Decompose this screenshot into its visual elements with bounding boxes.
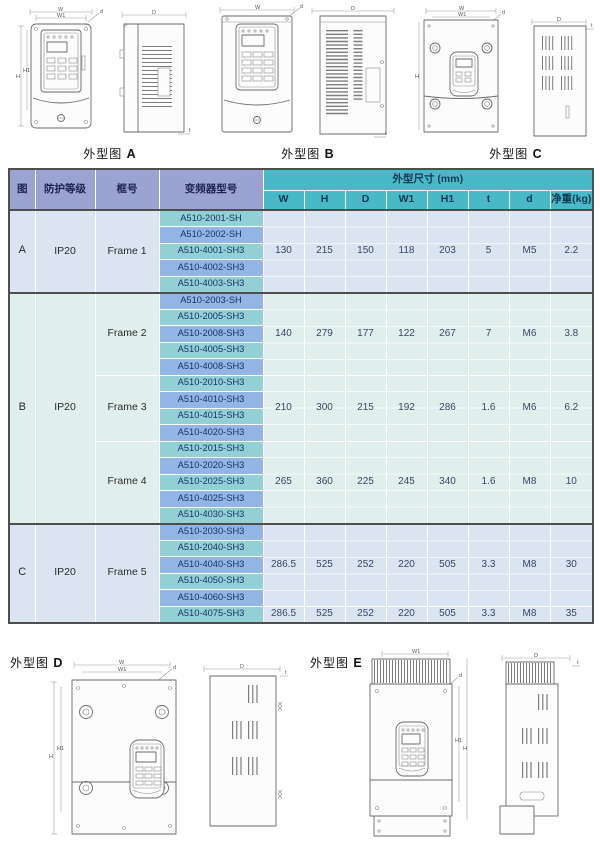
spec-cell-H1: 505 bbox=[427, 606, 468, 623]
header-model: 变频器型号 bbox=[159, 169, 263, 210]
model-cell: A510-4020-SH3 bbox=[159, 425, 263, 442]
svg-text:d: d bbox=[502, 10, 505, 16]
spec-cell-t: 3.3 bbox=[468, 524, 509, 607]
spec-cell-W1: 245 bbox=[386, 441, 427, 524]
frame-cell: Frame 1 bbox=[95, 210, 159, 293]
spec-cell-t: 3.3 bbox=[468, 606, 509, 623]
spec-cell-H1: 286 bbox=[427, 375, 468, 441]
figure-d-front-drawing: W W1 H H1 d bbox=[48, 660, 188, 842]
svg-text:d: d bbox=[300, 4, 303, 10]
spec-cell-H: 360 bbox=[304, 441, 345, 524]
model-cell: A510-2030-SH3 bbox=[159, 524, 263, 541]
spec-cell-D: 215 bbox=[345, 375, 386, 441]
spec-cell-t: 7 bbox=[468, 293, 509, 376]
protection-cell: IP20 bbox=[35, 293, 95, 524]
svg-text:D: D bbox=[557, 17, 561, 23]
frame-cell: Frame 3 bbox=[95, 375, 159, 441]
svg-text:W1: W1 bbox=[118, 667, 126, 673]
spec-cell-W: 286.5 bbox=[263, 606, 304, 623]
frame-cell: Frame 4 bbox=[95, 441, 159, 524]
frame-cell: Frame 5 bbox=[95, 524, 159, 623]
model-cell: A510-4005-SH3 bbox=[159, 342, 263, 359]
header-col-6: d bbox=[509, 190, 550, 210]
model-cell: A510-4003-SH3 bbox=[159, 276, 263, 293]
header-frame: 框号 bbox=[95, 169, 159, 210]
header-col-5: t bbox=[468, 190, 509, 210]
svg-text:W1: W1 bbox=[57, 13, 65, 19]
svg-text:W: W bbox=[255, 5, 261, 11]
model-cell: A510-4075-SH3 bbox=[159, 606, 263, 623]
svg-text:W1: W1 bbox=[412, 649, 420, 655]
spec-cell-D: 177 bbox=[345, 293, 386, 376]
svg-text:H: H bbox=[415, 74, 419, 80]
svg-text:H1: H1 bbox=[23, 68, 30, 74]
figure-c-side-drawing: D t bbox=[524, 18, 596, 142]
spec-cell-H: 525 bbox=[304, 524, 345, 607]
figure-e-side-drawing: D t bbox=[492, 654, 584, 840]
svg-text:D: D bbox=[152, 10, 156, 16]
protection-cell: IP20 bbox=[35, 210, 95, 293]
model-cell: A510-2003-SH bbox=[159, 293, 263, 310]
spec-cell-W1: 122 bbox=[386, 293, 427, 376]
figure-c-label-prefix: 外型图 bbox=[489, 147, 528, 161]
model-cell: A510-4040-SH3 bbox=[159, 557, 263, 574]
model-cell: A510-2001-SH bbox=[159, 210, 263, 227]
protection-cell: IP20 bbox=[35, 524, 95, 623]
figure-d-side-drawing: D t bbox=[196, 664, 290, 836]
spec-cell-t: 1.6 bbox=[468, 441, 509, 524]
spec-table: 图防护等级框号变频器型号外型尺寸 (mm)WHDW1H1td净重(kg)AIP2… bbox=[8, 168, 594, 624]
svg-text:t: t bbox=[591, 23, 593, 29]
svg-text:D: D bbox=[351, 6, 355, 12]
figure-b-label-letter: B bbox=[325, 147, 335, 161]
header-col-1: H bbox=[304, 190, 345, 210]
model-cell: A510-4060-SH3 bbox=[159, 590, 263, 607]
model-cell: A510-2008-SH3 bbox=[159, 326, 263, 343]
spec-cell-t: 1.6 bbox=[468, 375, 509, 441]
model-cell: A510-4015-SH3 bbox=[159, 408, 263, 425]
spec-cell-H: 525 bbox=[304, 606, 345, 623]
model-cell: A510-4010-SH3 bbox=[159, 392, 263, 409]
model-cell: A510-2015-SH3 bbox=[159, 441, 263, 458]
spec-cell-W: 210 bbox=[263, 375, 304, 441]
spec-cell-W: 265 bbox=[263, 441, 304, 524]
model-cell: A510-2040-SH3 bbox=[159, 540, 263, 557]
spec-cell-净重(kg): 3.8 bbox=[550, 293, 593, 376]
header-col-2: D bbox=[345, 190, 386, 210]
figure-b-label: 外型图 B bbox=[268, 145, 348, 162]
header-col-3: W1 bbox=[386, 190, 427, 210]
spec-cell-D: 252 bbox=[345, 606, 386, 623]
figure-a-side-drawing: D t bbox=[112, 10, 196, 140]
dimension-table: 图防护等级框号变频器型号外型尺寸 (mm)WHDW1H1td净重(kg)AIP2… bbox=[8, 168, 592, 624]
spec-cell-W1: 220 bbox=[386, 606, 427, 623]
svg-text:D: D bbox=[240, 664, 244, 670]
fig-cell: C bbox=[9, 524, 35, 623]
spec-cell-d: M8 bbox=[509, 441, 550, 524]
spec-cell-W1: 118 bbox=[386, 210, 427, 293]
header-col-7: 净重(kg) bbox=[550, 190, 593, 210]
figure-e-label-prefix: 外型图 bbox=[310, 656, 349, 670]
model-cell: A510-2020-SH3 bbox=[159, 458, 263, 475]
spec-cell-D: 225 bbox=[345, 441, 386, 524]
svg-text:t: t bbox=[577, 660, 579, 666]
model-cell: A510-4030-SH3 bbox=[159, 507, 263, 524]
svg-text:d: d bbox=[100, 9, 103, 15]
figure-c-label: 外型图 C bbox=[476, 145, 556, 162]
spec-cell-H1: 340 bbox=[427, 441, 468, 524]
model-cell: A510-2025-SH3 bbox=[159, 474, 263, 491]
spec-cell-净重(kg): 35 bbox=[550, 606, 593, 623]
spec-cell-d: M6 bbox=[509, 375, 550, 441]
spec-cell-H: 300 bbox=[304, 375, 345, 441]
svg-text:H: H bbox=[49, 754, 53, 760]
model-cell: A510-2002-SH bbox=[159, 227, 263, 244]
model-cell: A510-2005-SH3 bbox=[159, 309, 263, 326]
figure-b-label-prefix: 外型图 bbox=[281, 147, 320, 161]
spec-cell-净重(kg): 30 bbox=[550, 524, 593, 607]
svg-text:d: d bbox=[459, 673, 462, 679]
spec-cell-t: 5 bbox=[468, 210, 509, 293]
model-cell: A510-2010-SH3 bbox=[159, 375, 263, 392]
fig-cell: A bbox=[9, 210, 35, 293]
figure-a-front-drawing: W W1 H H1 d bbox=[16, 6, 108, 138]
svg-text:t: t bbox=[285, 670, 287, 676]
spec-cell-净重(kg): 10 bbox=[550, 441, 593, 524]
frame-cell: Frame 2 bbox=[95, 293, 159, 376]
model-cell: A510-4050-SH3 bbox=[159, 573, 263, 590]
figure-b-front-drawing: W d bbox=[212, 4, 304, 139]
spec-cell-d: M6 bbox=[509, 293, 550, 376]
spec-cell-W: 286.5 bbox=[263, 524, 304, 607]
spec-cell-H: 279 bbox=[304, 293, 345, 376]
header-col-4: H1 bbox=[427, 190, 468, 210]
model-cell: A510-4008-SH3 bbox=[159, 359, 263, 376]
svg-text:W: W bbox=[119, 660, 125, 666]
spec-cell-d: M5 bbox=[509, 210, 550, 293]
model-cell: A510-4002-SH3 bbox=[159, 260, 263, 277]
spec-cell-W1: 220 bbox=[386, 524, 427, 607]
svg-text:t: t bbox=[189, 128, 191, 134]
fig-cell: B bbox=[9, 293, 35, 524]
model-cell: A510-4025-SH3 bbox=[159, 491, 263, 508]
figure-a-label: 外型图 A bbox=[70, 145, 150, 162]
header-protection: 防护等级 bbox=[35, 169, 95, 210]
svg-text:H: H bbox=[463, 746, 467, 752]
svg-text:H1: H1 bbox=[57, 746, 64, 752]
spec-cell-d: M8 bbox=[509, 524, 550, 607]
figure-a-label-letter: A bbox=[127, 147, 137, 161]
figure-b-side-drawing: D t bbox=[306, 6, 400, 142]
spec-cell-H1: 505 bbox=[427, 524, 468, 607]
svg-text:W1: W1 bbox=[458, 12, 466, 18]
spec-cell-H1: 203 bbox=[427, 210, 468, 293]
figure-c-front-drawing: W W1 d H bbox=[416, 6, 508, 138]
svg-text:H: H bbox=[16, 74, 20, 80]
header-fig: 图 bbox=[9, 169, 35, 210]
spec-cell-H: 215 bbox=[304, 210, 345, 293]
figure-d-label-prefix: 外型图 bbox=[10, 656, 49, 670]
spec-cell-W: 140 bbox=[263, 293, 304, 376]
svg-text:H1: H1 bbox=[455, 738, 462, 744]
header-col-0: W bbox=[263, 190, 304, 210]
figure-e-front-drawing: W1 d H1 H bbox=[352, 650, 482, 842]
header-dims-group: 外型尺寸 (mm) bbox=[263, 169, 593, 190]
spec-cell-d: M8 bbox=[509, 606, 550, 623]
svg-text:t: t bbox=[385, 131, 387, 137]
spec-cell-净重(kg): 6.2 bbox=[550, 375, 593, 441]
svg-text:d: d bbox=[173, 665, 176, 671]
spec-cell-D: 252 bbox=[345, 524, 386, 607]
figure-a-label-prefix: 外型图 bbox=[83, 147, 122, 161]
spec-cell-W1: 192 bbox=[386, 375, 427, 441]
spec-cell-D: 150 bbox=[345, 210, 386, 293]
model-cell: A510-4001-SH3 bbox=[159, 243, 263, 260]
spec-cell-H1: 267 bbox=[427, 293, 468, 376]
svg-text:D: D bbox=[534, 653, 538, 659]
figure-c-label-letter: C bbox=[533, 147, 543, 161]
spec-cell-净重(kg): 2.2 bbox=[550, 210, 593, 293]
spec-cell-W: 130 bbox=[263, 210, 304, 293]
